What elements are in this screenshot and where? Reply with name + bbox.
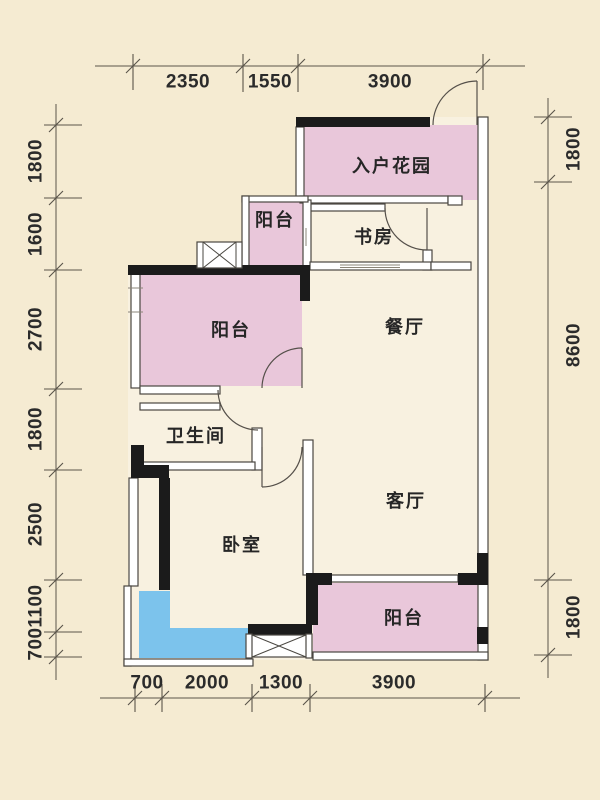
balcony-bottom-bottom-wall: [313, 652, 488, 660]
wall-balcony-bottom-topleft: [306, 573, 332, 585]
balcony-top-left-wall: [242, 196, 249, 266]
balcony-bottom-slider: [330, 575, 458, 582]
bay-window-frame-left: [124, 586, 131, 666]
dim-top-1550: 1550: [248, 72, 292, 93]
study-top-wall: [310, 204, 385, 211]
dim-right-1800a: 1800: [564, 127, 585, 171]
dim-left-700: 700: [26, 627, 47, 660]
dim-top-2350: 2350: [166, 72, 210, 93]
bedroom-window-box: [246, 634, 312, 658]
dim-left-1100: 1100: [26, 584, 47, 627]
window-box-jamb: [246, 634, 252, 658]
wall-right-chunk-upper: [477, 553, 488, 585]
dim-right-8600: 8600: [564, 323, 585, 367]
dim-bottom-1300: 1300: [259, 673, 303, 694]
dim-left-2500: 2500: [26, 502, 47, 546]
room-label-entry-garden: 入户花园: [352, 155, 432, 176]
dim-bottom-700: 700: [130, 673, 163, 694]
study-left-wall: [303, 200, 311, 266]
entry-garden-wall-notch: [448, 196, 462, 205]
dim-bottom-3900: 3900: [372, 673, 416, 694]
bedroom-living-divider-wall: [303, 440, 313, 575]
outer-wall-left-lower: [129, 478, 138, 586]
room-label-living: 客厅: [386, 490, 426, 511]
dim-left-1800b: 1800: [26, 407, 47, 451]
room-label-bedroom: 卧室: [222, 534, 262, 555]
wall-right-chunk-lower: [477, 627, 488, 644]
dim-left-1600: 1600: [26, 212, 47, 256]
room-label-dining: 餐厅: [384, 316, 425, 337]
wall-bedroom-left: [159, 478, 170, 590]
dim-left-2700: 2700: [26, 307, 47, 351]
room-label-study: 书房: [354, 226, 394, 247]
floor-plan-drawing: 2350 1550 3900 1800 1600 2700 1800 2500 …: [0, 0, 600, 800]
wall-bedroom-bottom: [248, 624, 312, 635]
floor-plan-page: 2350 1550 3900 1800 1600 2700 1800 2500 …: [0, 0, 600, 800]
bathroom-top-wall: [140, 403, 220, 410]
shaft-box: [197, 242, 242, 268]
balcony-left-bottom-wall: [140, 386, 220, 394]
hall-wall-segment: [431, 262, 471, 270]
dim-left-1800a: 1800: [26, 139, 47, 183]
room-label-balcony-top: 阳台: [255, 209, 295, 230]
entry-garden-left-wall: [296, 127, 304, 200]
study-bottom-wall: [310, 262, 431, 270]
entry-garden-bottom-wall: [300, 196, 448, 203]
dim-bottom-2000: 2000: [185, 673, 229, 694]
balcony-top-top-wall: [242, 196, 308, 202]
room-label-balcony-bottom: 阳台: [384, 607, 424, 628]
room-label-balcony-left: 阳台: [211, 319, 251, 340]
outer-wall-left-upper: [131, 274, 140, 388]
dim-top-3900: 3900: [368, 72, 412, 93]
room-label-bathroom: 卫生间: [166, 425, 226, 446]
wall-entry-garden-top: [296, 117, 430, 127]
window-box-jamb: [306, 634, 312, 658]
wall-balcony-left-right-chunk: [300, 275, 310, 301]
bay-window-frame-bottom: [124, 659, 253, 666]
dim-right-1800b: 1800: [564, 595, 585, 639]
